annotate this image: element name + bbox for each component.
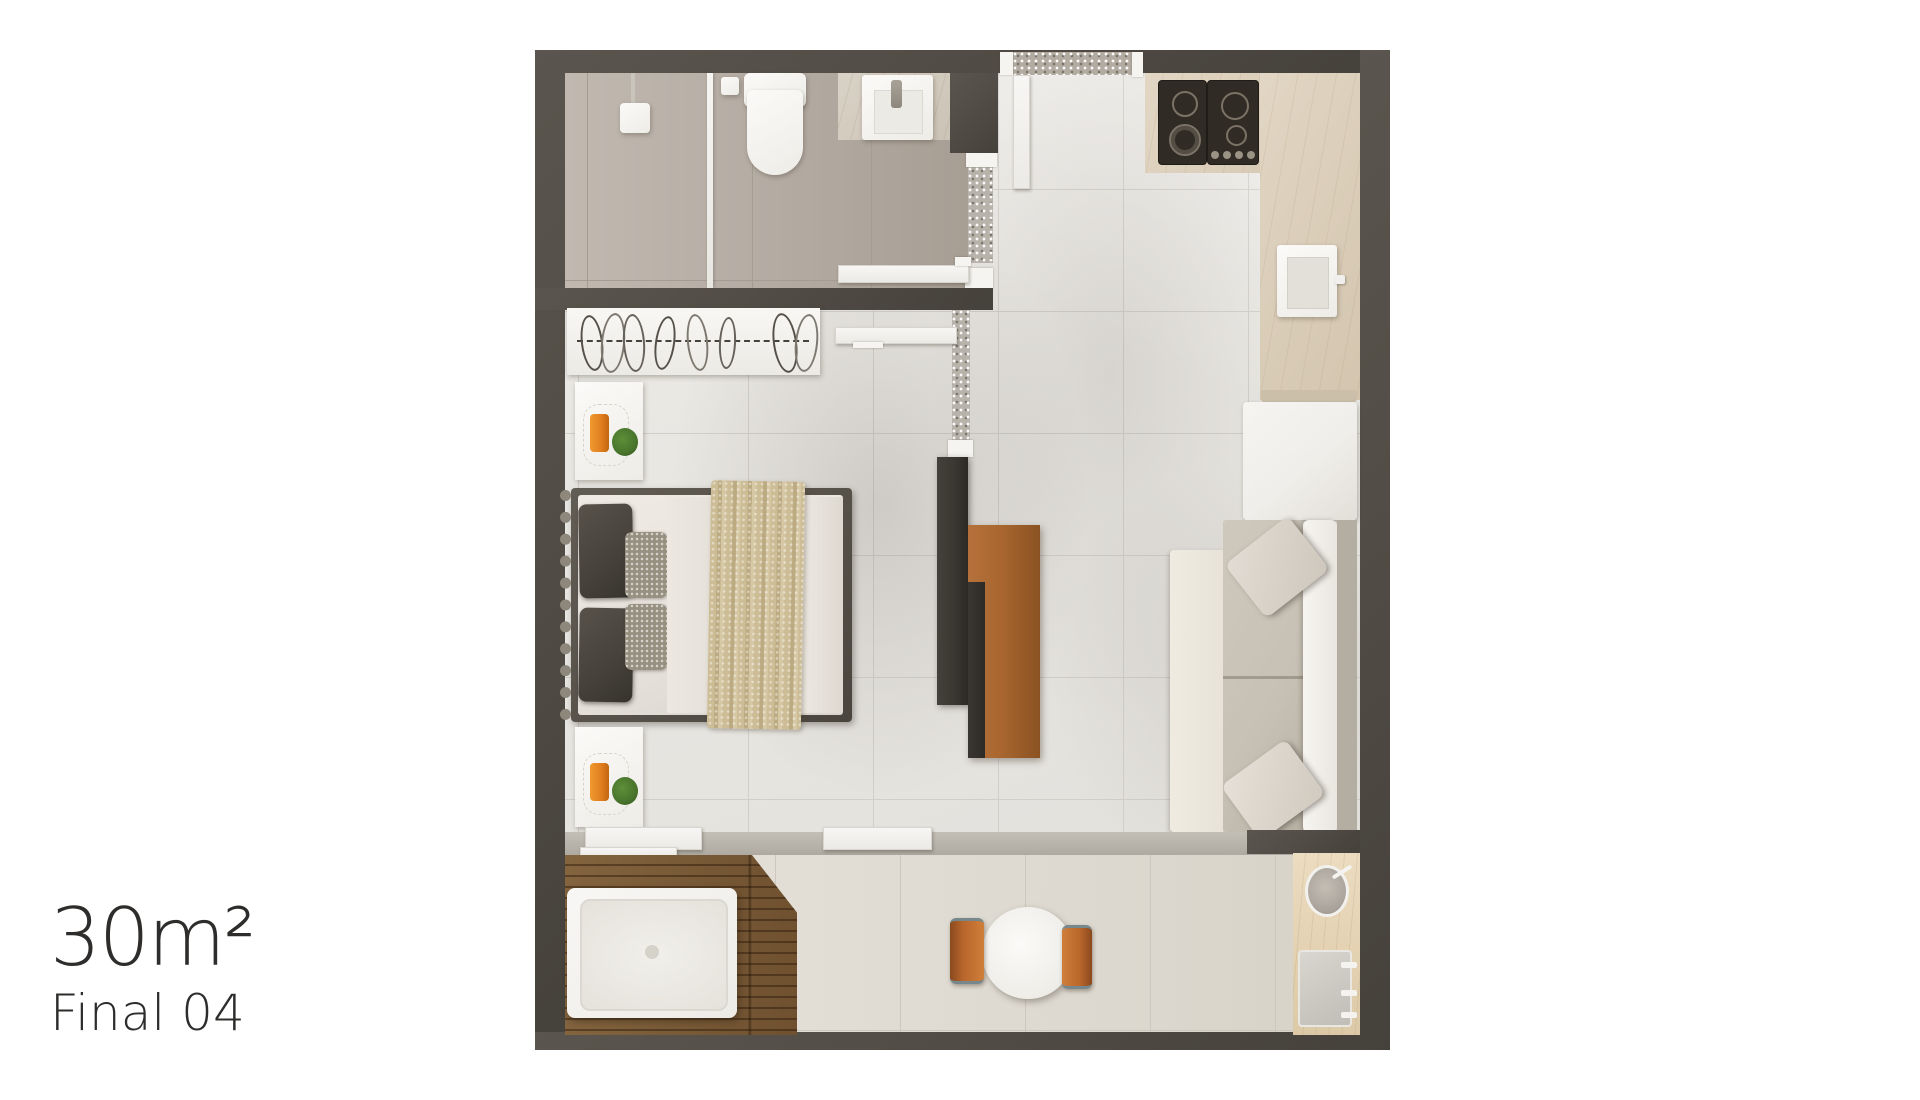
hanging-clothes bbox=[792, 313, 821, 373]
wall-entry-corner bbox=[950, 73, 998, 153]
sofa-armrest bbox=[1337, 520, 1357, 832]
gas-cooktop bbox=[1158, 80, 1257, 163]
washbasin-faucet bbox=[891, 80, 902, 108]
cooktop-knob bbox=[1235, 151, 1243, 159]
candle bbox=[590, 414, 609, 452]
candle bbox=[590, 763, 609, 801]
burner bbox=[1172, 91, 1198, 117]
sofa bbox=[1170, 390, 1360, 832]
hanging-clothes bbox=[651, 315, 678, 371]
wall-bathroom-bottom bbox=[535, 288, 993, 310]
wall-cap bbox=[966, 153, 997, 167]
caption: 30m² Final 04 bbox=[50, 898, 254, 1038]
tv-screen-edge bbox=[968, 582, 985, 758]
headboard-trim bbox=[560, 490, 571, 720]
toilet-bowl bbox=[747, 90, 803, 175]
kitchen-counter-side bbox=[1260, 73, 1360, 400]
plant bbox=[612, 428, 638, 456]
chair bbox=[1062, 925, 1092, 989]
entry-doormat bbox=[1013, 52, 1132, 75]
wall-cap bbox=[965, 268, 993, 288]
hanging-clothes bbox=[621, 313, 647, 372]
area-label: 30m² bbox=[50, 898, 254, 978]
sofa-seam bbox=[1223, 676, 1303, 679]
door-frame bbox=[955, 257, 971, 266]
cooktop-knob bbox=[1247, 151, 1255, 159]
tv-console bbox=[937, 457, 968, 705]
bistro-table bbox=[982, 907, 1074, 999]
entry-door-post bbox=[1132, 52, 1143, 77]
sofa-chaise bbox=[1170, 550, 1223, 832]
wardrobe-rack bbox=[567, 308, 820, 375]
canvas: { "caption": { "area": "30m²", "variant"… bbox=[0, 0, 1920, 1100]
wall-top bbox=[535, 50, 1390, 73]
bathroom-door-leaf bbox=[838, 265, 969, 283]
entry-door-leaf bbox=[1013, 75, 1030, 189]
hot-tub-drain bbox=[645, 945, 659, 959]
wall-balcony-stub bbox=[1247, 830, 1360, 854]
cooktop-knob bbox=[1223, 151, 1231, 159]
glass-wall-panel-upper bbox=[968, 167, 993, 263]
shower-arm bbox=[631, 73, 635, 105]
double-bed bbox=[563, 488, 852, 722]
variant-label: Final 04 bbox=[50, 988, 254, 1038]
kitchen-faucet bbox=[1335, 275, 1345, 284]
throw-blanket bbox=[707, 480, 805, 730]
wall-right bbox=[1360, 50, 1390, 1050]
pillow-speckled bbox=[625, 532, 667, 598]
hanging-clothes bbox=[684, 313, 711, 372]
cooktop-knob bbox=[1211, 151, 1219, 159]
nightstand bbox=[575, 382, 643, 480]
hanging-clothes bbox=[718, 317, 738, 370]
shower-glass-partition bbox=[707, 73, 713, 288]
entry-door-post bbox=[1000, 52, 1013, 75]
glass-wall-panel bbox=[948, 390, 968, 443]
chair bbox=[950, 918, 984, 984]
door-frame bbox=[853, 342, 883, 348]
shower-head bbox=[620, 103, 650, 133]
plant bbox=[612, 777, 638, 805]
sofa-back-cushion bbox=[1261, 390, 1357, 402]
pillow-speckled bbox=[625, 604, 667, 670]
kitchen-sink-bowl bbox=[1287, 257, 1329, 309]
toilet-flush-plate bbox=[721, 77, 739, 95]
burner bbox=[1221, 92, 1249, 120]
sofa-end-seat bbox=[1243, 402, 1357, 520]
sink-handle bbox=[1341, 962, 1357, 968]
nightstand bbox=[575, 727, 643, 827]
burner bbox=[1169, 124, 1201, 156]
sink-handle bbox=[1341, 990, 1357, 996]
burner bbox=[1226, 125, 1247, 146]
floor-plan bbox=[535, 50, 1390, 1050]
sink-handle bbox=[1341, 1012, 1357, 1018]
sliding-door-panel bbox=[823, 827, 932, 850]
hot-tub bbox=[567, 888, 737, 1018]
